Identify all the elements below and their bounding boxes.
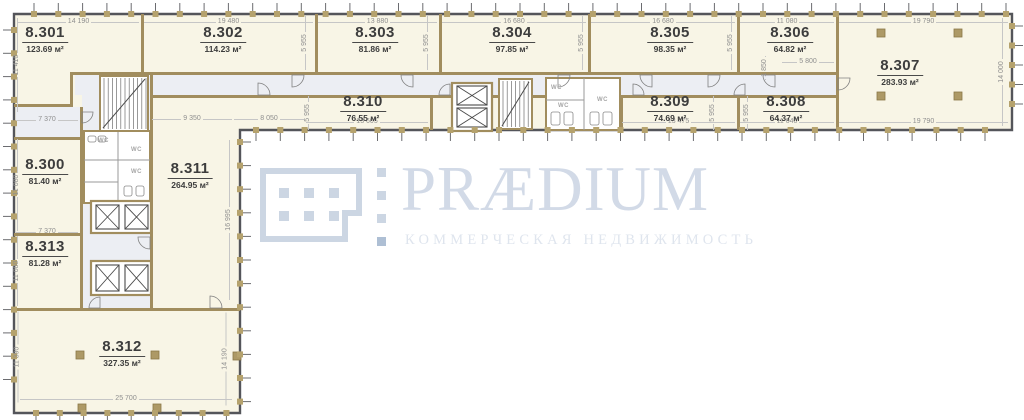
room-code: 8.304 xyxy=(489,25,535,43)
dim-text: 5 955 xyxy=(422,34,432,52)
dimension-label: 9 350 xyxy=(152,114,232,124)
facade-mark xyxy=(33,410,39,416)
dim-line xyxy=(17,197,18,231)
wc-fixture xyxy=(124,186,132,196)
column xyxy=(151,351,159,359)
dim-text: 7 370 xyxy=(38,227,56,237)
dim-text: 14 190 xyxy=(220,348,230,369)
dimension-label: 7 370 xyxy=(16,115,78,125)
room-code: 8.313 xyxy=(22,239,68,257)
logo-border-right xyxy=(356,168,362,214)
room-area: 123.69 м² xyxy=(22,44,68,54)
dim-line xyxy=(380,122,428,123)
room-area: 64.37 м² xyxy=(763,113,809,123)
wc-fixture xyxy=(590,112,599,125)
room-code: 8.308 xyxy=(763,94,809,112)
dim-line xyxy=(17,283,18,306)
dim-text: 5 955 xyxy=(726,34,736,52)
dim-line xyxy=(152,119,181,120)
wc-label: WC xyxy=(597,97,608,103)
dimension-label: 11 080 xyxy=(12,139,22,231)
facade-mark xyxy=(885,127,891,133)
facade-mark xyxy=(237,233,243,239)
logo-dot xyxy=(279,188,289,198)
room-label-8.309: 8.30974.69 м² xyxy=(647,93,693,123)
dim-line xyxy=(20,399,113,400)
facade-mark xyxy=(1009,23,1015,29)
facade-mark xyxy=(237,186,243,192)
facade-mark xyxy=(399,127,405,133)
facade-mark xyxy=(982,127,988,133)
facade-mark xyxy=(569,127,575,133)
facade-mark xyxy=(253,127,259,133)
wall xyxy=(14,104,73,107)
dim-text: 16 995 xyxy=(224,209,234,230)
dim-text: 11 080 xyxy=(12,261,22,282)
facade-mark xyxy=(545,127,551,133)
facade-mark xyxy=(237,304,243,310)
facade-mark xyxy=(237,257,243,263)
room-area: 98.35 м² xyxy=(647,44,693,54)
facade-mark xyxy=(423,127,429,133)
facade-mark xyxy=(104,410,110,416)
dim-line xyxy=(17,236,18,259)
dim-text: 1 850 xyxy=(760,59,770,77)
facade-mark xyxy=(1009,43,1015,49)
facade-mark xyxy=(237,351,243,357)
facade-mark xyxy=(1009,62,1015,68)
room-code: 8.306 xyxy=(767,25,813,43)
dim-line xyxy=(139,399,232,400)
wc-fixture xyxy=(551,112,560,125)
dim-line xyxy=(234,119,258,120)
room-area: 81.40 м² xyxy=(22,176,68,186)
room-code: 8.305 xyxy=(647,25,693,43)
column xyxy=(954,29,962,37)
dim-line xyxy=(16,120,36,121)
facade-mark xyxy=(958,127,964,133)
dim-text: 7 370 xyxy=(38,115,56,125)
dim-line xyxy=(308,96,309,102)
room-label-8.302: 8.302114.23 м² xyxy=(200,24,246,54)
dim-line xyxy=(318,22,365,23)
dim-text: 5 955 xyxy=(577,34,587,52)
facade-mark xyxy=(152,410,158,416)
dim-line xyxy=(427,54,428,70)
facade-mark xyxy=(326,127,332,133)
room-code: 8.312 xyxy=(99,339,145,357)
room-code: 8.300 xyxy=(22,157,68,175)
dimension-label: 19 790 xyxy=(839,17,1008,27)
wc-label: WC xyxy=(131,147,142,153)
dim-line xyxy=(839,122,911,123)
facade-mark xyxy=(277,127,283,133)
facade-mark xyxy=(200,410,206,416)
dim-line xyxy=(799,22,834,23)
room-code: 8.311 xyxy=(168,161,213,179)
wall xyxy=(73,72,836,75)
column xyxy=(877,92,885,100)
facade-mark xyxy=(237,163,243,169)
facade-mark xyxy=(237,281,243,287)
room-area: 81.28 м² xyxy=(22,258,68,268)
dim-line xyxy=(747,96,748,102)
dim-line xyxy=(17,311,18,344)
facade-mark xyxy=(447,127,453,133)
room-code: 8.309 xyxy=(647,94,693,112)
facade-mark xyxy=(909,127,915,133)
facade-mark xyxy=(1009,82,1015,88)
dim-line xyxy=(229,140,230,207)
dim-line xyxy=(731,54,732,70)
logo-column-dot xyxy=(377,191,386,200)
dimension-label: 5 955 xyxy=(708,96,718,130)
dim-line xyxy=(18,22,66,23)
wc-fixture xyxy=(136,186,144,196)
dim-text: 11 410 xyxy=(12,55,22,76)
facade-mark xyxy=(472,127,478,133)
logo-dot xyxy=(329,211,339,221)
facade-mark xyxy=(237,328,243,334)
dimension-label: 25 700 xyxy=(20,394,232,404)
logo-dot xyxy=(304,211,314,221)
dimension-label: 11 390 xyxy=(12,311,22,402)
dim-line xyxy=(747,124,748,130)
facade-mark xyxy=(618,127,624,133)
column xyxy=(76,351,84,359)
dim-line xyxy=(17,369,18,402)
room-code: 8.307 xyxy=(877,58,923,76)
facade-mark xyxy=(350,127,356,133)
facade-mark xyxy=(933,127,939,133)
dim-line xyxy=(731,16,732,32)
dim-line xyxy=(225,312,226,346)
facade-mark xyxy=(812,127,818,133)
logo-dot xyxy=(329,188,339,198)
room-label-8.304: 8.30497.85 м² xyxy=(489,24,535,54)
dim-text: 5 955 xyxy=(303,104,313,122)
wc-label: WC xyxy=(558,103,569,109)
wc-fixture xyxy=(564,112,573,125)
dim-line xyxy=(308,124,309,130)
room-area: 76.55 м² xyxy=(340,113,386,123)
facade-mark xyxy=(81,410,87,416)
dim-line xyxy=(582,16,583,32)
dim-text: 14 000 xyxy=(997,61,1007,82)
facade-mark xyxy=(788,127,794,133)
logo-column-dot xyxy=(377,237,386,246)
dim-line xyxy=(1002,85,1003,126)
room-code: 8.302 xyxy=(200,25,246,43)
room-label-8.303: 8.30381.86 м² xyxy=(352,24,398,54)
room-label-8.310: 8.31076.55 м² xyxy=(340,93,386,123)
dim-text: 14 190 xyxy=(68,17,89,27)
dim-line xyxy=(280,119,304,120)
room-area: 81.86 м² xyxy=(352,44,398,54)
floorplan-page: PRÆDIUM КОММЕРЧЕСКАЯ НЕДВИЖИМОСТЬ 8.3011… xyxy=(0,0,1024,420)
room-label-8.305: 8.30598.35 м² xyxy=(647,24,693,54)
room-area: 283.93 м² xyxy=(877,77,923,87)
room-area: 64.82 м² xyxy=(767,44,813,54)
dim-text: 11 390 xyxy=(12,346,22,367)
dim-text: 19 790 xyxy=(913,117,934,127)
facade-mark xyxy=(836,127,842,133)
facade-mark xyxy=(642,127,648,133)
facade-mark xyxy=(223,410,229,416)
room-label-8.313: 8.31381.28 м² xyxy=(22,238,68,268)
dim-line xyxy=(442,22,501,23)
dim-line xyxy=(225,371,226,405)
room-area: 97.85 м² xyxy=(489,44,535,54)
logo-dot xyxy=(304,188,314,198)
facade-mark xyxy=(237,375,243,381)
dimension-label: 11 410 xyxy=(12,18,22,112)
facade-mark xyxy=(375,127,381,133)
wall xyxy=(836,14,839,130)
dimension-label: 14 000 xyxy=(997,18,1007,126)
logo-border-top xyxy=(260,168,362,174)
dim-text: 19 790 xyxy=(913,17,934,27)
wc-label: WC xyxy=(551,85,562,91)
facade-mark xyxy=(861,127,867,133)
room-label-8.301: 8.301123.69 м² xyxy=(22,24,68,54)
dimension-label: 11 080 xyxy=(12,236,22,306)
dim-line xyxy=(427,16,428,32)
room-label-8.312: 8.312327.35 м² xyxy=(99,338,145,368)
room-area: 74.69 м² xyxy=(647,113,693,123)
dimension-label: 5 955 xyxy=(742,96,752,130)
dim-line xyxy=(713,124,714,130)
logo-column-dot xyxy=(377,214,386,223)
dim-text: 8 050 xyxy=(260,114,278,124)
dimension-label: 14 190 xyxy=(220,312,230,405)
dim-line xyxy=(305,54,306,70)
dim-line xyxy=(582,54,583,70)
facade-mark xyxy=(593,127,599,133)
dim-text: 5 955 xyxy=(742,104,752,122)
facade-mark xyxy=(690,127,696,133)
dim-text: 11 080 xyxy=(12,175,22,196)
dimension-label: 1 850 xyxy=(760,56,770,80)
dim-line xyxy=(740,22,775,23)
dim-line xyxy=(782,62,797,63)
wall xyxy=(70,72,73,107)
dimension-label: 16 995 xyxy=(224,140,234,300)
room-label-8.308: 8.30864.37 м² xyxy=(763,93,809,123)
dimension-label: 5 955 xyxy=(300,16,310,70)
dim-line xyxy=(17,77,18,112)
room-area: 264.95 м² xyxy=(168,180,213,190)
room-area: 327.35 м² xyxy=(99,358,145,368)
dim-text: 9 350 xyxy=(183,114,201,124)
wc-fixture xyxy=(603,112,612,125)
room-label-8.300: 8.30081.40 м² xyxy=(22,156,68,186)
dimension-label: 5 955 xyxy=(577,16,587,70)
facade-mark xyxy=(520,127,526,133)
dim-line xyxy=(58,232,78,233)
column xyxy=(877,29,885,37)
dimension-label: 5 955 xyxy=(726,16,736,70)
logo-border-bottom xyxy=(260,236,348,242)
dim-line xyxy=(591,22,650,23)
facade-mark xyxy=(237,139,243,145)
dim-line xyxy=(203,119,232,120)
dimension-label: 7 370 xyxy=(16,227,78,237)
facade-mark xyxy=(666,127,672,133)
wall xyxy=(14,308,240,311)
logo-column-dot xyxy=(377,168,386,177)
dim-line xyxy=(58,120,78,121)
dim-text: 5 955 xyxy=(300,34,310,52)
dim-line xyxy=(765,79,766,80)
wc-fixture xyxy=(88,136,96,142)
brand-name: PRÆDIUM xyxy=(401,156,709,222)
dimension-label: 5 800 xyxy=(782,57,834,67)
logo-border-step xyxy=(342,210,348,242)
dim-line xyxy=(91,22,139,23)
facade-mark xyxy=(1009,101,1015,107)
brand-tagline: КОММЕРЧЕСКАЯ НЕДВИЖИМОСТЬ xyxy=(405,232,757,249)
dim-line xyxy=(765,56,766,57)
room-code: 8.310 xyxy=(340,94,386,112)
column xyxy=(954,92,962,100)
dim-line xyxy=(713,96,714,102)
dim-line xyxy=(819,62,834,63)
dimension-label: 19 790 xyxy=(839,117,1008,127)
logo-dot xyxy=(279,211,289,221)
wall xyxy=(430,95,433,130)
dim-line xyxy=(229,233,230,300)
room-code: 8.303 xyxy=(352,25,398,43)
dim-line xyxy=(305,16,306,32)
dim-line xyxy=(839,22,911,23)
dimension-label: 5 955 xyxy=(303,96,313,130)
room-code: 8.301 xyxy=(22,25,68,43)
dimension-label: 5 955 xyxy=(422,16,432,70)
room-label-8.311: 8.311264.95 м² xyxy=(168,160,213,190)
room-area: 114.23 м² xyxy=(200,44,246,54)
facade-mark xyxy=(237,210,243,216)
room-label-8.306: 8.30664.82 м² xyxy=(767,24,813,54)
dim-line xyxy=(144,22,216,23)
facade-mark xyxy=(176,410,182,416)
dim-text: 5 800 xyxy=(799,57,817,67)
facade-mark xyxy=(128,410,134,416)
dimension-label: 8 050 xyxy=(234,114,304,124)
dim-text: 25 700 xyxy=(115,394,136,404)
room-label-8.307: 8.307283.93 м² xyxy=(877,57,923,87)
facade-mark xyxy=(57,410,63,416)
dim-line xyxy=(1002,18,1003,59)
wc-label: WC xyxy=(98,138,109,144)
wall xyxy=(14,137,82,140)
dim-line xyxy=(17,139,18,173)
facade-mark xyxy=(237,399,243,405)
praedium-watermark: PRÆDIUM КОММЕРЧЕСКАЯ НЕДВИЖИМОСТЬ xyxy=(255,156,795,260)
wc-label: WC xyxy=(131,169,142,175)
dim-line xyxy=(17,18,18,53)
logo-border-left xyxy=(260,168,266,242)
dim-line xyxy=(16,232,36,233)
facade-mark xyxy=(763,127,769,133)
dim-text: 5 955 xyxy=(708,104,718,122)
facade-mark xyxy=(496,127,502,133)
